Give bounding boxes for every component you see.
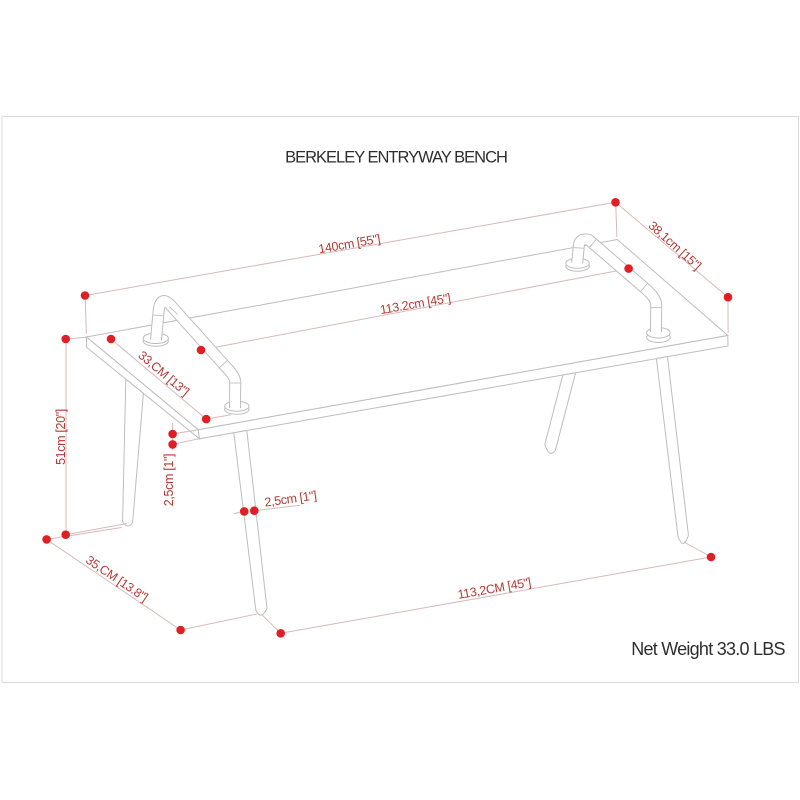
svg-text:2,5cm [1"]: 2,5cm [1"] (162, 454, 176, 506)
svg-text:BERKELEY ENTRYWAY BENCH: BERKELEY ENTRYWAY BENCH (285, 149, 507, 167)
svg-text:51cm [20"]: 51cm [20"] (54, 409, 68, 465)
svg-text:Net Weight 33.0 LBS: Net Weight 33.0 LBS (631, 639, 785, 659)
